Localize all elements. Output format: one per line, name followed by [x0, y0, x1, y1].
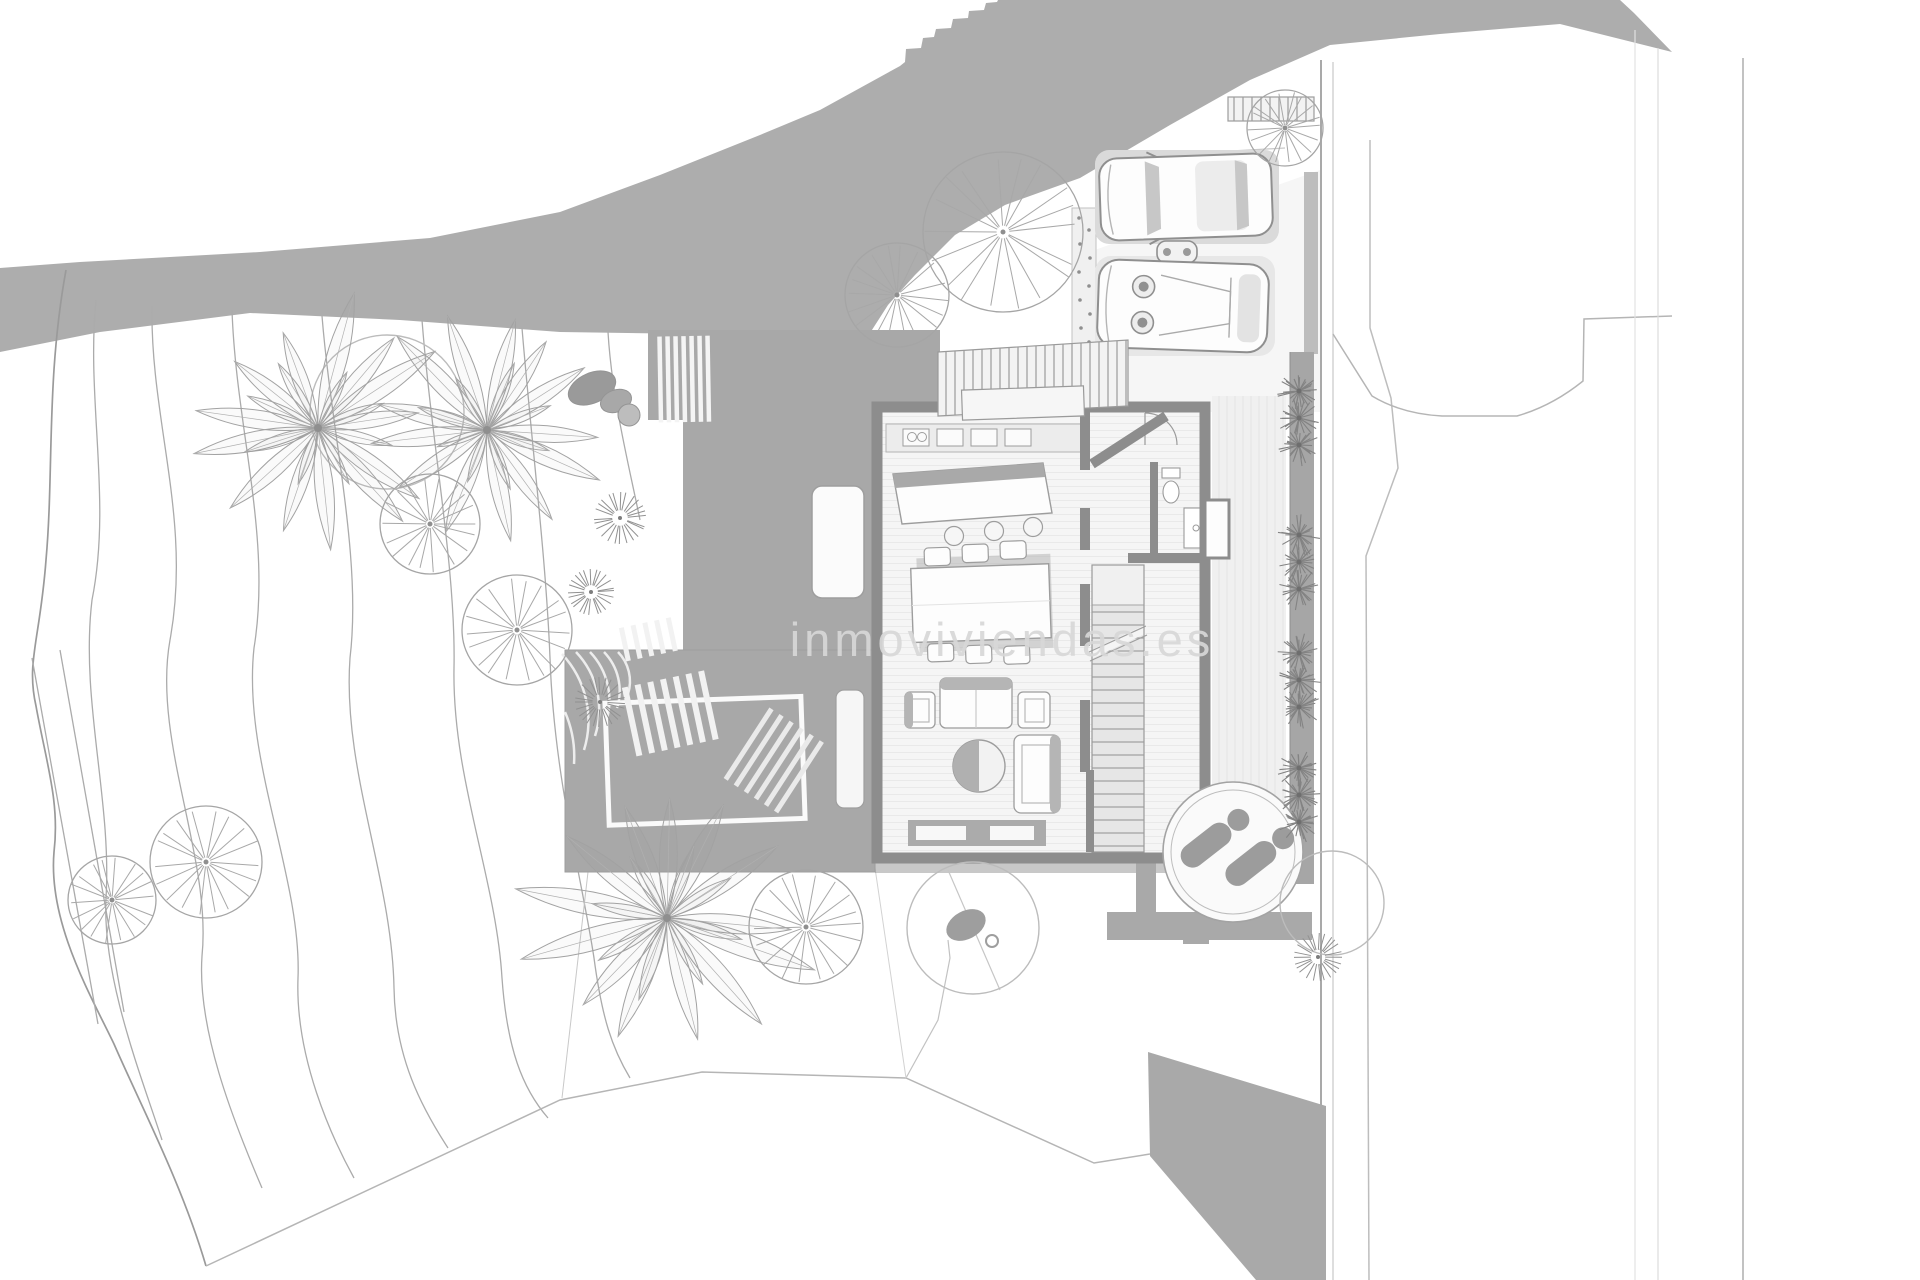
- kitchen-counter: [886, 424, 1084, 452]
- deck-planter-2: [836, 690, 864, 808]
- shrub-sunburst: [568, 569, 614, 615]
- car-1: [1098, 148, 1273, 246]
- hedge-top: [1228, 97, 1314, 121]
- boulder: [618, 404, 640, 426]
- driveway-shrub-strip: [1072, 208, 1096, 356]
- hillside: [0, 0, 1672, 352]
- chaise-lounge: [1014, 735, 1060, 813]
- scooter: [1157, 241, 1197, 263]
- shrub-sunburst: [594, 492, 646, 544]
- spa: [1163, 782, 1303, 922]
- sofa: [940, 678, 1012, 728]
- canopy-outline: [1280, 851, 1384, 955]
- car-2: [1097, 259, 1270, 353]
- wall-closet-bump: [1205, 500, 1229, 558]
- shrub-sunburst: [1294, 933, 1342, 981]
- interior-stairs: [1088, 565, 1148, 852]
- canopy-tree: [150, 806, 262, 918]
- canopy-tree: [462, 575, 572, 685]
- tree-with-trunk: [941, 870, 1000, 990]
- sideboard: [908, 820, 1046, 846]
- palm-tree: [372, 316, 600, 541]
- site-plan-drawing: inmoviviendas.es: [0, 0, 1920, 1280]
- canopy-tree: [68, 856, 156, 944]
- site-plan-page: inmoviviendas.es: [0, 0, 1920, 1280]
- deck-planter-1: [812, 486, 864, 598]
- watermark: inmoviviendas.es: [790, 613, 1215, 666]
- armchair-1: [905, 692, 935, 728]
- armchair-2: [1018, 692, 1050, 728]
- retaining-slope: [1148, 1052, 1326, 1280]
- parcel-boundary-lines: [1321, 30, 1743, 1280]
- coffee-table: [953, 740, 1005, 792]
- entrance-landing: [962, 386, 1085, 420]
- palm-tree: [194, 293, 435, 550]
